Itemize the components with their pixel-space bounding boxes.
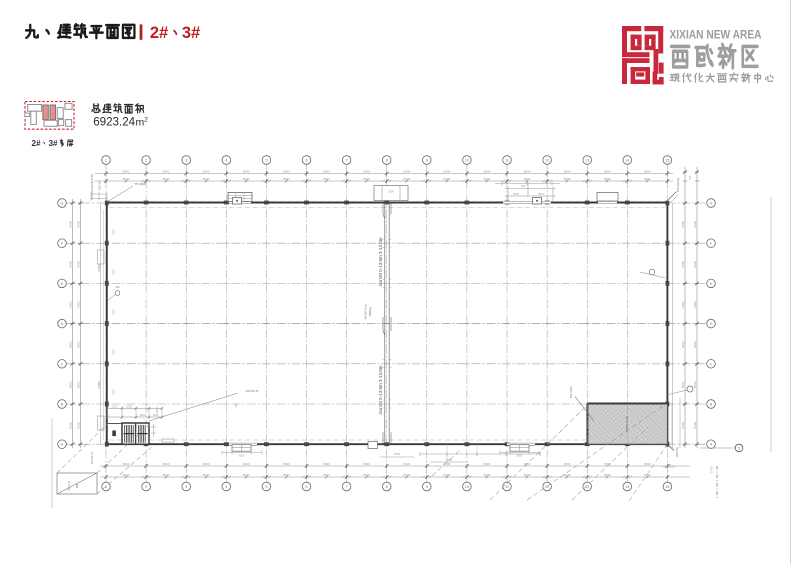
svg-text:8000: 8000: [564, 169, 571, 173]
svg-text:15: 15: [665, 158, 669, 163]
svg-text:2#: 2#: [31, 139, 41, 148]
svg-text:8000: 8000: [524, 177, 531, 181]
svg-text:8000: 8000: [76, 381, 80, 388]
svg-text:8000: 8000: [123, 462, 130, 466]
svg-text:8000: 8000: [68, 381, 72, 388]
svg-text:B: B: [710, 403, 713, 407]
svg-text:8000: 8000: [564, 177, 571, 181]
svg-text:2000: 2000: [388, 191, 394, 194]
svg-text:Gcr16t 5-13.0m 3-13.0m: Gcr16t 5-13.0m 3-13.0m: [378, 365, 383, 414]
svg-text:700: 700: [688, 175, 692, 180]
svg-text:1: 1: [105, 158, 107, 163]
svg-text:2800: 2800: [155, 406, 159, 413]
svg-text:2: 2: [145, 158, 147, 163]
svg-text:8000: 8000: [243, 473, 250, 477]
svg-text:Gcr16t 5-13.0m 3-13.0m: Gcr16t 5-13.0m 3-13.0m: [378, 237, 383, 286]
svg-text:3#: 3#: [48, 139, 58, 148]
svg-text:GJZ1: GJZ1: [112, 268, 116, 275]
svg-text:8000: 8000: [203, 473, 210, 477]
svg-text:8000: 8000: [681, 301, 685, 308]
svg-text:8000: 8000: [644, 462, 651, 466]
svg-text:C5X10: C5X10: [98, 181, 102, 190]
svg-text:8000: 8000: [283, 462, 290, 466]
svg-text:m: m: [136, 117, 145, 129]
svg-text:B: B: [61, 403, 64, 407]
svg-text:8000: 8000: [203, 462, 210, 466]
svg-text:8000: 8000: [604, 177, 611, 181]
svg-text:8000: 8000: [243, 177, 250, 181]
svg-text:C5X10(X2)GB/T706: C5X10(X2)GB/T706: [90, 174, 94, 200]
svg-text:XIXIAN NEW AREA: XIXIAN NEW AREA: [670, 27, 762, 41]
svg-text:YP 2400: YP 2400: [134, 182, 146, 186]
svg-text:8000: 8000: [163, 462, 170, 466]
svg-text:8000: 8000: [123, 169, 130, 173]
svg-text:1600kg: 1600kg: [368, 307, 372, 317]
svg-text:A: A: [61, 443, 64, 447]
svg-text:5: 5: [265, 158, 267, 163]
svg-text:D: D: [710, 322, 713, 326]
svg-text:8000: 8000: [323, 473, 330, 477]
svg-text:12: 12: [545, 158, 549, 163]
svg-text:8000: 8000: [484, 462, 491, 466]
svg-text:6923.24: 6923.24: [93, 116, 135, 129]
svg-text:8000: 8000: [693, 341, 697, 348]
svg-text:8000: 8000: [76, 261, 80, 268]
svg-text:8000: 8000: [323, 169, 330, 173]
svg-text:8000: 8000: [283, 473, 290, 477]
svg-text:8000: 8000: [76, 421, 80, 428]
svg-text:13: 13: [585, 158, 589, 163]
svg-text:2: 2: [145, 484, 147, 489]
svg-text:3: 3: [185, 158, 187, 163]
svg-text:GJZ1: GJZ1: [112, 388, 116, 395]
svg-text:8000: 8000: [68, 421, 72, 428]
svg-text:8000: 8000: [76, 341, 80, 348]
svg-text:2#: 2#: [150, 24, 168, 42]
svg-text:8000: 8000: [681, 220, 685, 227]
svg-text:11: 11: [505, 484, 509, 489]
svg-text:8000: 8000: [681, 261, 685, 268]
svg-text:8000: 8000: [403, 169, 410, 173]
svg-text:8000: 8000: [604, 473, 611, 477]
svg-text:9: 9: [426, 158, 428, 163]
svg-text:3: 3: [185, 484, 187, 489]
svg-text:8000: 8000: [444, 169, 451, 173]
svg-text:8000: 8000: [68, 220, 72, 227]
svg-text:8000: 8000: [564, 473, 571, 477]
svg-text:8000: 8000: [243, 462, 250, 466]
svg-text:A: A: [710, 443, 713, 447]
svg-text:8000: 8000: [693, 261, 697, 268]
svg-text:8000: 8000: [524, 169, 531, 173]
svg-text:1/1713 JT: 1/1713 JT: [245, 389, 259, 393]
svg-text:8000: 8000: [484, 177, 491, 181]
svg-text:C5X10(X2): C5X10(X2): [676, 178, 680, 192]
svg-text:G: G: [710, 202, 713, 206]
svg-text:3300: 3300: [239, 454, 245, 458]
svg-text:8000: 8000: [203, 177, 210, 181]
svg-text:XIA: XIA: [75, 484, 79, 489]
svg-text:8000: 8000: [444, 473, 451, 477]
svg-text:8000: 8000: [681, 381, 685, 388]
svg-text:7: 7: [346, 158, 348, 163]
svg-text:JS-08: JS-08: [710, 466, 714, 473]
svg-text:D: D: [61, 322, 64, 326]
svg-text:8: 8: [386, 484, 388, 489]
svg-text:8000: 8000: [693, 381, 697, 388]
svg-text:8000: 8000: [68, 301, 72, 308]
svg-text:2250: 2250: [126, 405, 133, 409]
svg-text:3300: 3300: [517, 454, 523, 458]
svg-text:GJZ1: GJZ1: [112, 348, 116, 355]
svg-text:8000: 8000: [484, 169, 491, 173]
svg-text:8000: 8000: [644, 177, 651, 181]
svg-text:8000: 8000: [681, 421, 685, 428]
svg-text:1: 1: [738, 447, 740, 451]
svg-text:5: 5: [265, 484, 267, 489]
svg-text:8000: 8000: [484, 473, 491, 477]
svg-text:8000: 8000: [681, 341, 685, 348]
svg-text:3#: 3#: [182, 24, 200, 42]
svg-text:1200: 1200: [513, 192, 520, 196]
svg-text:8000: 8000: [693, 301, 697, 308]
svg-text:2250: 2250: [111, 405, 118, 409]
svg-text:11: 11: [505, 158, 509, 163]
svg-text:8000: 8000: [524, 473, 531, 477]
svg-text:8000: 8000: [283, 177, 290, 181]
svg-text:8000: 8000: [363, 473, 370, 477]
svg-text:GJZ1: GJZ1: [112, 308, 116, 315]
svg-text:15: 15: [665, 484, 669, 489]
svg-text:8000: 8000: [123, 177, 130, 181]
svg-text:E: E: [710, 282, 713, 286]
svg-text:8000: 8000: [243, 169, 250, 173]
svg-text:8000: 8000: [604, 169, 611, 173]
svg-text:8000: 8000: [323, 177, 330, 181]
svg-text:8000: 8000: [323, 462, 330, 466]
svg-text:JZ1: JZ1: [115, 285, 120, 289]
svg-text:8000: 8000: [403, 462, 410, 466]
svg-text:8000: 8000: [76, 301, 80, 308]
svg-text:8000: 8000: [163, 169, 170, 173]
svg-text:4.50m: 4.50m: [97, 263, 101, 272]
svg-text:150: 150: [521, 184, 526, 188]
svg-text:8000: 8000: [283, 169, 290, 173]
svg-text:8000: 8000: [403, 177, 410, 181]
svg-text:8000: 8000: [68, 261, 72, 268]
svg-text:GJZ1: GJZ1: [112, 228, 116, 235]
svg-text:8000: 8000: [363, 169, 370, 173]
svg-text:8000: 8000: [163, 177, 170, 181]
svg-text:4.50m: 4.50m: [97, 380, 101, 389]
svg-text:8000: 8000: [644, 169, 651, 173]
svg-text:8000: 8000: [564, 462, 571, 466]
svg-text:8000: 8000: [693, 421, 697, 428]
svg-text:8000: 8000: [444, 177, 451, 181]
svg-text:150: 150: [667, 463, 672, 467]
svg-text:9: 9: [426, 484, 428, 489]
svg-text:LJD: LJD: [234, 404, 238, 409]
svg-text:2: 2: [144, 117, 148, 124]
svg-text:8000: 8000: [68, 341, 72, 348]
svg-text:C: C: [61, 362, 64, 366]
svg-text:8000: 8000: [123, 473, 130, 477]
svg-text:QCPD 9.0m: QCPD 9.0m: [625, 415, 629, 432]
svg-text:E: E: [61, 282, 64, 286]
svg-text:8000: 8000: [363, 177, 370, 181]
svg-text:7: 7: [346, 484, 348, 489]
svg-text:8000: 8000: [76, 220, 80, 227]
svg-text:C: C: [710, 362, 713, 366]
svg-text:(QCPD): (QCPD): [675, 447, 679, 457]
svg-text:8000: 8000: [403, 473, 410, 477]
svg-text:8: 8: [386, 158, 388, 163]
svg-text:RK 3.0m: RK 3.0m: [569, 386, 573, 398]
svg-text:PD 6.0: PD 6.0: [67, 481, 71, 491]
svg-text:4/F B(7.2m): 4/F B(7.2m): [364, 305, 368, 320]
svg-text:1500: 1500: [139, 413, 146, 417]
svg-text:3000: 3000: [394, 452, 401, 456]
svg-text:2810: 2810: [538, 192, 545, 196]
svg-text:8000: 8000: [163, 473, 170, 477]
svg-text:8000: 8000: [203, 169, 210, 173]
svg-text:8000: 8000: [693, 220, 697, 227]
svg-text:G: G: [61, 202, 64, 206]
svg-text:QCPD XT: QCPD XT: [90, 451, 94, 464]
svg-text:6: 6: [305, 484, 307, 489]
svg-text:6: 6: [305, 158, 307, 163]
svg-text:8000: 8000: [363, 462, 370, 466]
